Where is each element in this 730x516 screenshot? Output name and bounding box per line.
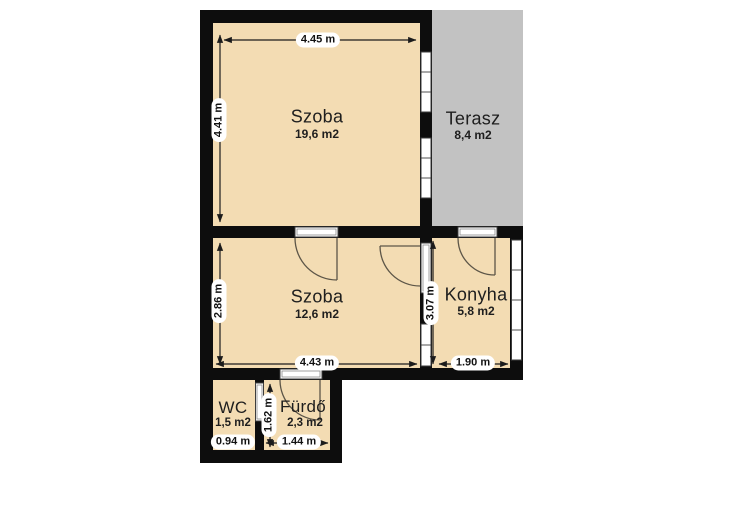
room-area-label-szoba-top: 19,6 m2 (295, 127, 339, 141)
dim-label-wc-width: 0.94 m (211, 435, 255, 450)
room-label-wc: WC (219, 398, 248, 418)
window-symbol-szoba-top-1 (421, 52, 431, 112)
dim-label-konyha-width: 1.90 m (451, 356, 495, 371)
wall-annex-bottom (200, 450, 342, 463)
wall-top (200, 10, 432, 23)
dim-label-mid-width: 4.43 m (295, 356, 339, 371)
floor-plan-canvas (0, 0, 730, 516)
dim-label-top-height: 4.41 m (212, 98, 227, 142)
room-label-terasz: Terasz (446, 109, 501, 130)
room-label-szoba-mid: Szoba (291, 287, 344, 308)
room-area-label-terasz: 8,4 m2 (454, 128, 491, 142)
dim-label-furdo-height: 1.62 m (262, 393, 277, 437)
wall-szoba-terasz (420, 10, 432, 238)
window-symbol-szoba-konyha (421, 324, 431, 366)
dim-label-furdo-width: 1.44 m (277, 435, 321, 450)
room-area-label-konyha: 5,8 m2 (457, 304, 494, 318)
room-label-konyha: Konyha (445, 285, 508, 306)
window-symbol-szoba-top-2 (421, 138, 431, 198)
window-symbol-konyha-right (512, 240, 522, 360)
room-area-label-szoba-mid: 12,6 m2 (295, 307, 339, 321)
room-label-furdo: Fürdő (280, 397, 326, 417)
dim-label-top-width: 4.45 m (296, 33, 340, 48)
room-area-label-wc: 1,5 m2 (215, 417, 251, 429)
room-label-szoba-top: Szoba (291, 107, 344, 128)
wall-annex-right (330, 380, 342, 463)
dim-label-mid-height: 2.86 m (212, 279, 227, 323)
floor-plan: Szoba 19,6 m2 Terasz 8,4 m2 Szoba 12,6 m… (0, 0, 730, 516)
dim-label-konyha-height: 3.07 m (424, 281, 439, 325)
room-area-label-furdo: 2,3 m2 (287, 417, 323, 429)
wall-left (200, 10, 213, 380)
